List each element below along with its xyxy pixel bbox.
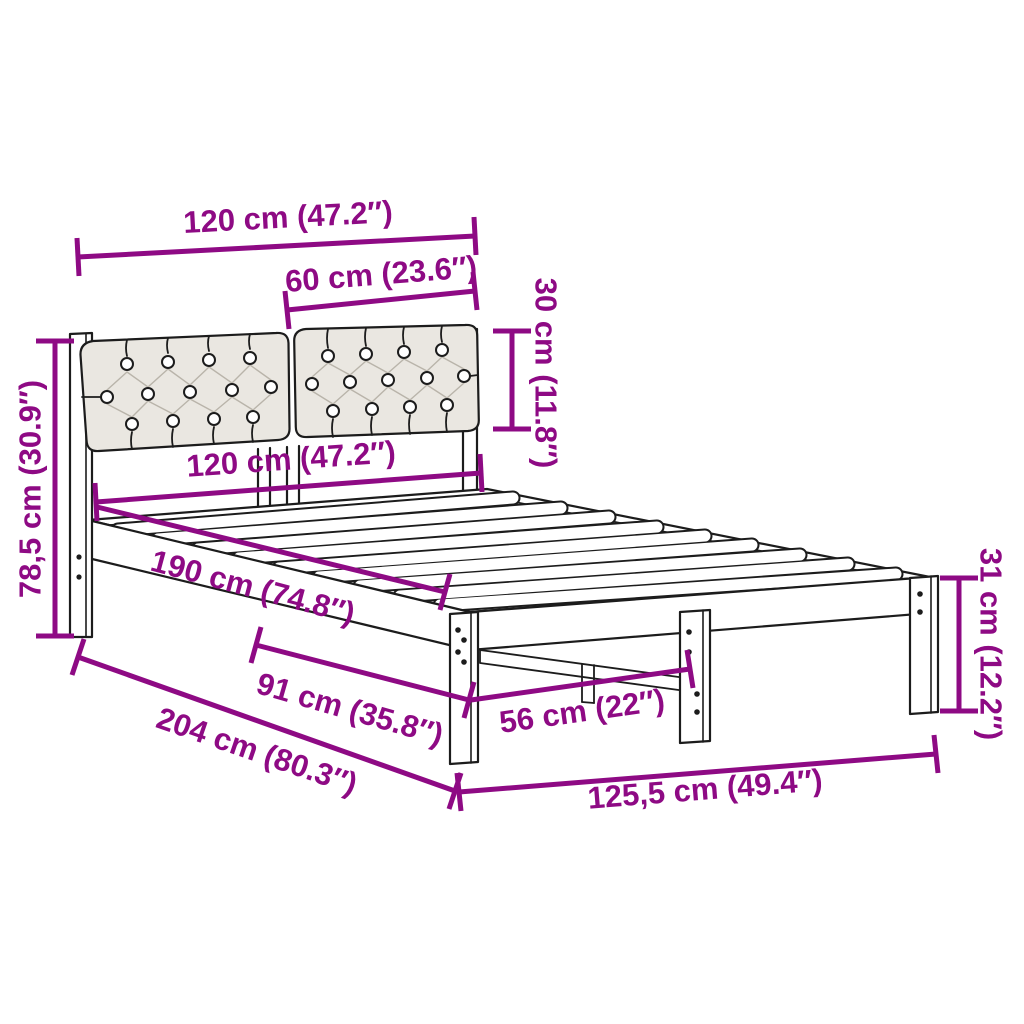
dim-label-cushion-height: 30 cm (11.8″): [531, 278, 562, 469]
dim-label-headboard-height: 78,5 cm (30.9″): [15, 380, 46, 598]
dim-label-frame-height: 31 cm (12.2″): [976, 548, 1007, 740]
leg-foot-far: [910, 576, 938, 714]
leg-foot-center: [680, 610, 710, 743]
product-diagram: 120 cm (47.2″) 60 cm (23.6″) 30 cm (11.8…: [0, 0, 1024, 1024]
dim-cushion-height: [493, 331, 531, 429]
dim-frame-height: [940, 578, 978, 711]
bed-line-art: [0, 0, 1024, 1024]
